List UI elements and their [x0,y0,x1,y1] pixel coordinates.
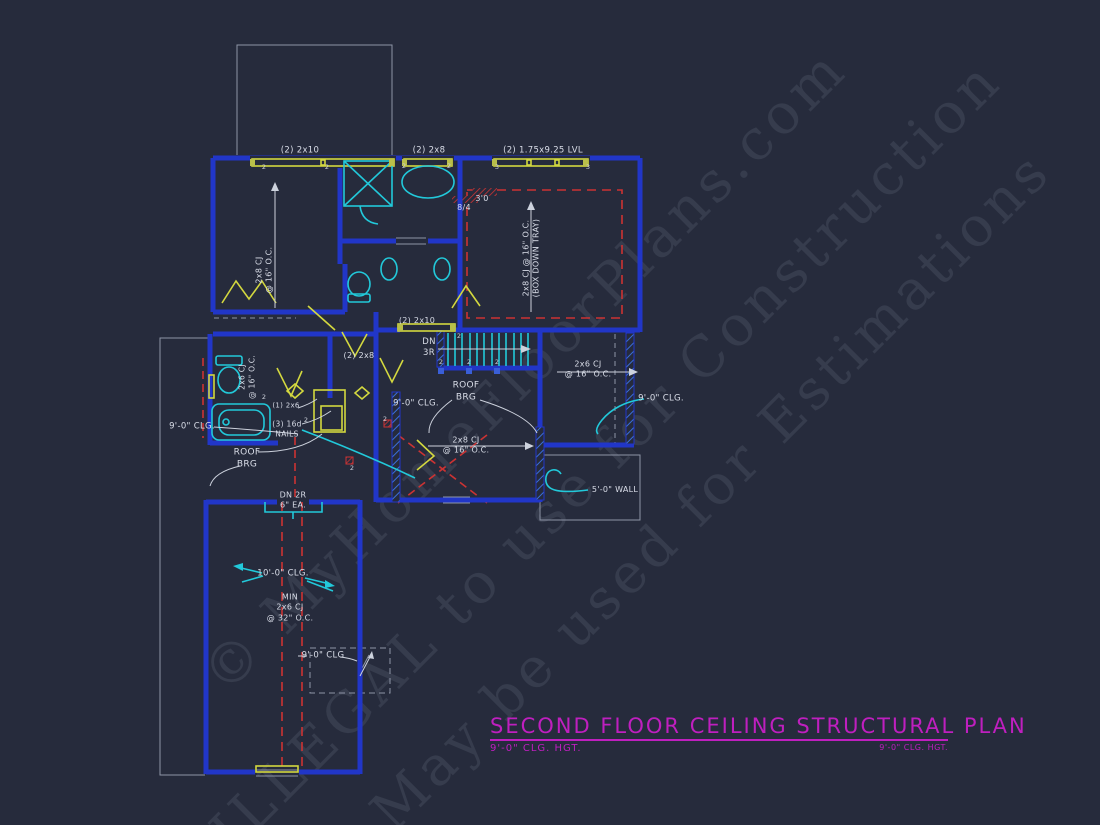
label-clg-right: 9'-0" CLG. [638,393,684,404]
label-fireplace-note-b: 3'0 [475,194,488,204]
toilet-main-bath [348,272,370,296]
label-joists-tray-room: 2x8 CJ @ 16" O.C. (BOX DOWN TRAY) [522,219,543,298]
blueprint-canvas: © MyHomeFloorPlans.com ILLEGAL to use fo… [0,0,1100,825]
label-stairs-dn-3r: DN 3R [422,337,436,359]
label-joists-mid-low: 2x8 CJ @ 16" O.C. [443,436,490,457]
post-count-mark: 2 [495,358,499,366]
post-count-mark: 2 [383,415,387,423]
post-count-mark: 2 [262,163,266,171]
label-beam-stairs: (2) 2x10 [399,316,435,326]
ceiling-height-note-right: 9'-0" CLG. HGT. [879,743,948,754]
label-wall-height: 5'-0" WALL [592,485,638,495]
label-roof-brg-left: ROOF BRG [234,447,261,470]
label-fireplace-note-a: 8/4 [457,203,471,213]
post-count-mark: 2 [304,416,308,424]
post-count-mark: 2 [457,332,461,340]
post-count-mark: 2 [467,358,471,366]
label-clg-garage: 10'-0" CLG. [257,568,309,579]
post-count-mark: 2 [447,162,451,170]
label-joists-right: 2x6 CJ @ 16" O.C. [565,360,612,381]
tub-oval [402,166,454,198]
post-count-mark: 2 [350,464,354,472]
label-nail-note-b: (3) 16d NAILS [272,419,301,439]
tray-ceiling-outline [467,190,622,318]
post-count-mark: 2 [402,162,406,170]
label-stairs-dn-2r: DN 2R 6" EA. [280,491,307,512]
post-count-mark: 2 [262,393,266,401]
label-joists-left-room: 2x8 CJ @ 16" O.C. [255,247,276,294]
label-beam-top-mid: (2) 2x8 [413,145,446,156]
plan-title: SECOND FLOOR CEILING STRUCTURAL PLAN [490,714,948,741]
label-roof-brg-center: ROOF BRG [453,380,480,403]
title-block: SECOND FLOOR CEILING STRUCTURAL PLAN 9'-… [490,714,948,754]
label-nail-note-a: (1) 2x6 [272,401,299,410]
label-beam-top-left: (2) 2x10 [281,145,319,156]
post-count-mark: 3 [586,163,590,171]
ceiling-height-note-left: 9'-0" CLG. HGT. [490,743,582,754]
label-clg-left: 9'-0" CLG. [169,421,215,432]
label-clg-attic: 9'-0" CLG [302,650,345,661]
beam-garage-door [256,766,298,772]
floor-plan-drawing [0,0,1100,825]
sink-right [434,258,450,280]
label-beam-top-right: (2) 1.75x9.25 LVL [503,145,583,156]
label-beam-mid: (2) 2x8 [344,351,375,361]
label-joists-garage: MIN 2x6 CJ @ 32" O.C. [267,592,314,623]
post-count-mark: 3 [495,163,499,171]
wall-height-leader [546,470,588,492]
post-count-mark: 2 [325,163,329,171]
label-joists-left-bath: 2x6 CJ @ 16" O.C. [237,355,257,399]
sink-left [381,258,397,280]
post-count-mark: 2 [439,358,443,366]
label-clg-hall: 9'-0" CLG. [393,398,439,409]
